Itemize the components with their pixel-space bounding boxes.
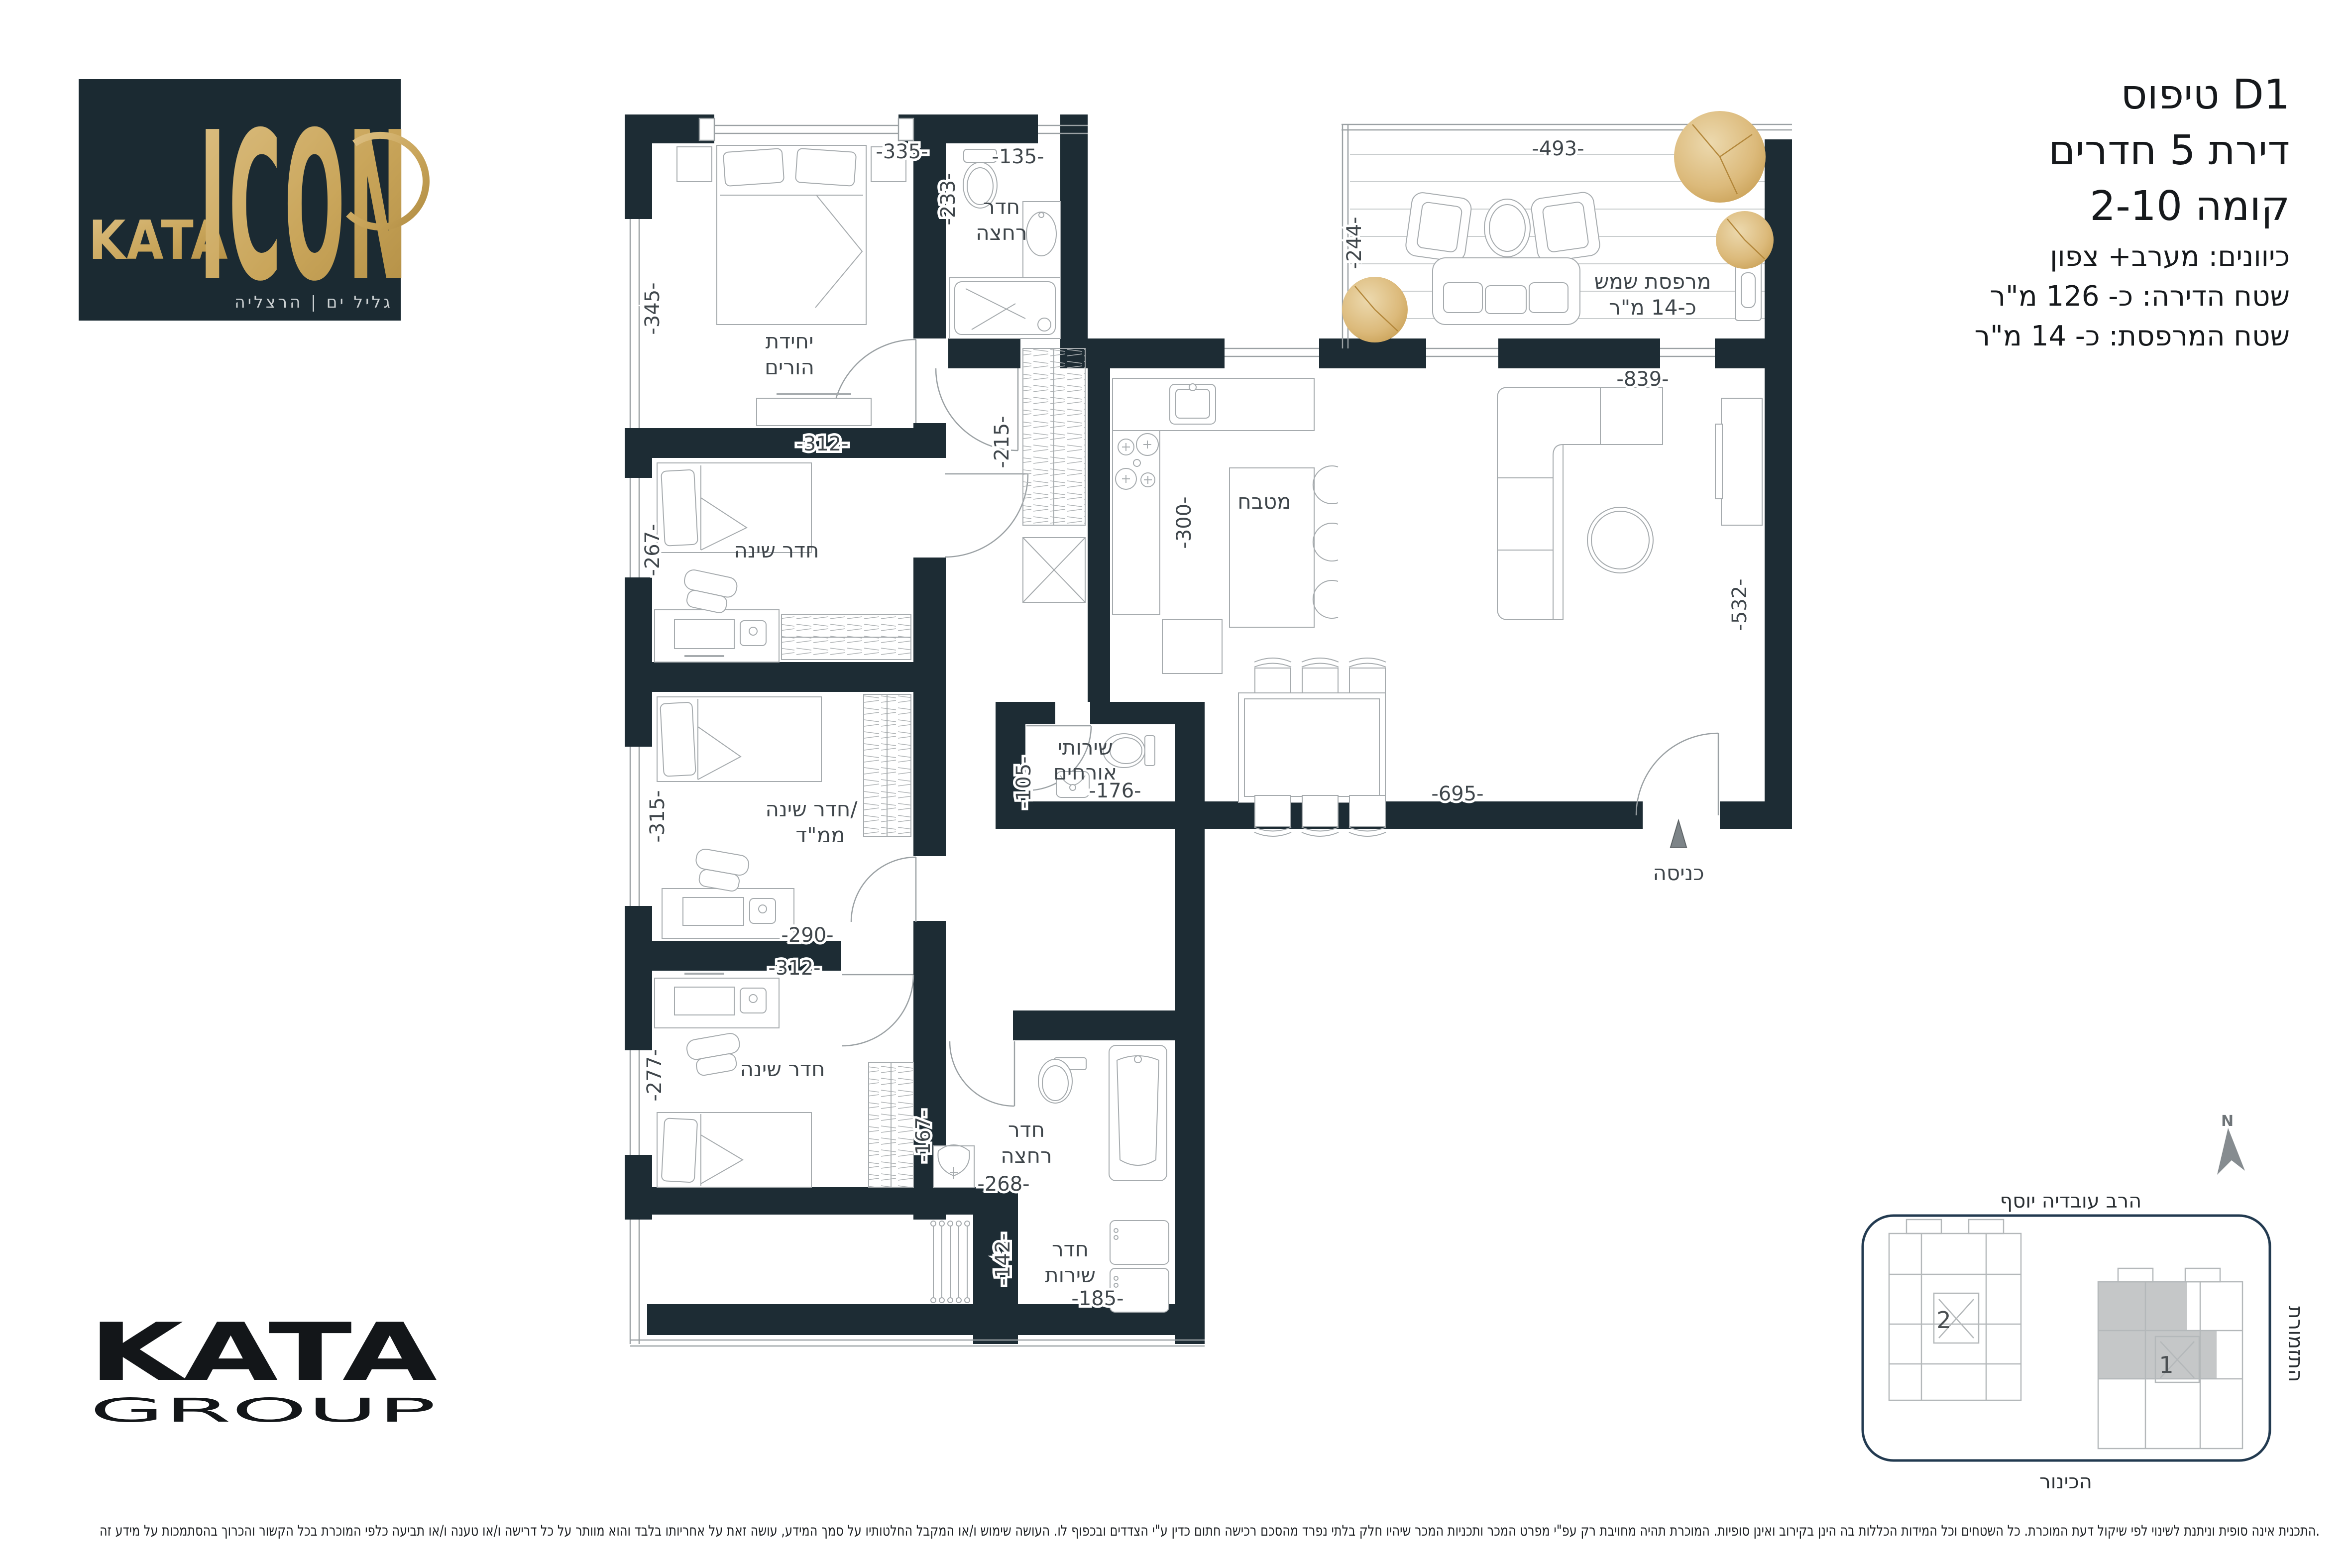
dim-268: -268- <box>977 1173 1029 1196</box>
label-bath-bottom-1: חדר <box>1008 1118 1045 1142</box>
label-mamad-2: ממ"ד <box>795 823 845 847</box>
group-sub-text: GROUP <box>90 1391 436 1430</box>
label-bath-top-2: רחצה <box>976 221 1027 245</box>
label-balcony-2: כ-14 מ"ר <box>1609 295 1696 320</box>
dim-244: -244- <box>1343 217 1366 269</box>
dim-176: -176- <box>1089 780 1141 802</box>
dim-167: -167- <box>912 1110 935 1162</box>
master-bedroom-furniture <box>677 145 906 426</box>
dim-839: -839- <box>1616 368 1669 391</box>
label-bath-top-1: חדר <box>983 195 1020 219</box>
dim-277: -277- <box>643 1049 666 1101</box>
title-rooms: דירת 5 חדרים <box>2048 127 2290 174</box>
label-mamad-1: חדר שינה/ <box>766 797 858 821</box>
dim-142: -142- <box>992 1233 1014 1285</box>
bedroom3-door <box>842 975 913 1046</box>
title-block: טיפוס D1 דירת 5 חדרים קומה 2-10 כיוונים:… <box>1975 71 2290 352</box>
title-type: טיפוס D1 <box>2121 71 2290 118</box>
label-balcony-1: מרפסת שמש <box>1594 269 1711 294</box>
label-entrance: כניסה <box>1653 861 1704 885</box>
siteplan-building2 <box>1889 1220 2021 1400</box>
info-directions: כיוונים: מערב+ צפון <box>2050 240 2290 273</box>
corridor-storage <box>1023 348 1085 602</box>
dim-695: -695- <box>1431 783 1483 805</box>
north-arrow-icon: N <box>2217 1113 2245 1175</box>
bath-bottom-door <box>950 1041 1014 1106</box>
bedroom2-door <box>945 474 1028 557</box>
dim-215: -215- <box>991 416 1013 468</box>
floorplan-canvas: יחידת הורים חדר רחצה חדר שינה חדר שינה/ … <box>0 0 2352 1568</box>
dim-185: -185- <box>1071 1287 1123 1310</box>
kitchen-furniture <box>1113 378 1338 673</box>
siteplan-building1-number: 1 <box>2159 1351 2173 1378</box>
info-balcony-area: שטח המרפסת: כ- 14 מ"ר <box>1975 320 2290 352</box>
dim-267: -267- <box>641 524 664 576</box>
dim-335: -335- <box>876 140 928 163</box>
dim-345: -345- <box>641 282 664 335</box>
label-service-1: חדר <box>1052 1237 1089 1261</box>
siteplan: 2 1 הרב עובדיה יוסף התזמורת הכינור N <box>1863 1113 2307 1493</box>
street-top-label: הרב עובדיה יוסף <box>2000 1190 2142 1213</box>
entrance-door <box>1636 733 1718 815</box>
north-label: N <box>2221 1113 2234 1130</box>
dim-300: -300- <box>1173 496 1196 549</box>
balcony-furniture <box>1405 191 1761 325</box>
street-bottom-label: הכינור <box>2039 1470 2092 1493</box>
dim-135: -135- <box>992 145 1044 168</box>
label-bedroom2: חדר שינה <box>734 538 819 562</box>
dim-532: -532- <box>1728 578 1751 631</box>
dim-312a: -312- <box>796 433 848 455</box>
group-kata-text: KATA <box>89 1306 437 1399</box>
label-bedroom3: חדר שינה <box>740 1057 825 1081</box>
logo-tagline: גליל ים | הרצליה <box>234 292 393 312</box>
dim-493: -493- <box>1532 137 1584 160</box>
dim-315: -315- <box>646 790 669 842</box>
label-kitchen: מטבח <box>1237 489 1291 514</box>
bedroom2-furniture <box>655 463 911 662</box>
title-floor: קומה 2-10 <box>2090 183 2290 230</box>
terrace-railing <box>931 1221 970 1303</box>
disclaimer-text: התכנית אינה סופית וניתנת לשינוי לפי שיקו… <box>100 1522 2320 1540</box>
dining-furniture <box>1238 658 1386 836</box>
dim-312b: -312- <box>768 957 820 980</box>
dim-105: -105- <box>1012 756 1035 808</box>
living-furniture <box>1497 387 1762 620</box>
kata-icon-logo: KATA ICON גליל ים | הרצליה <box>79 79 426 326</box>
dim-290: -290- <box>781 924 833 947</box>
mamad-door <box>851 857 916 922</box>
label-master-1: יחידת <box>766 329 814 353</box>
label-bath-bottom-2: רחצה <box>1001 1143 1052 1168</box>
label-master-2: הורים <box>765 355 814 379</box>
logo-icon-text: ICON <box>199 89 411 326</box>
entrance-marker <box>1671 820 1686 847</box>
street-right-label: התזמורת <box>2284 1306 2307 1382</box>
kata-group-logo: KATA GROUP <box>89 1306 437 1430</box>
floorplan-page: יחידת הורים חדר רחצה חדר שינה חדר שינה/ … <box>0 0 2352 1568</box>
siteplan-building2-number: 2 <box>1936 1307 1951 1334</box>
label-guest-wc-1: שירותי <box>1057 735 1113 760</box>
dim-233: -233- <box>937 173 960 225</box>
info-apartment-area: שטח הדירה: כ- 126 מ"ר <box>1990 280 2290 313</box>
label-service-2: שירות <box>1045 1263 1096 1287</box>
